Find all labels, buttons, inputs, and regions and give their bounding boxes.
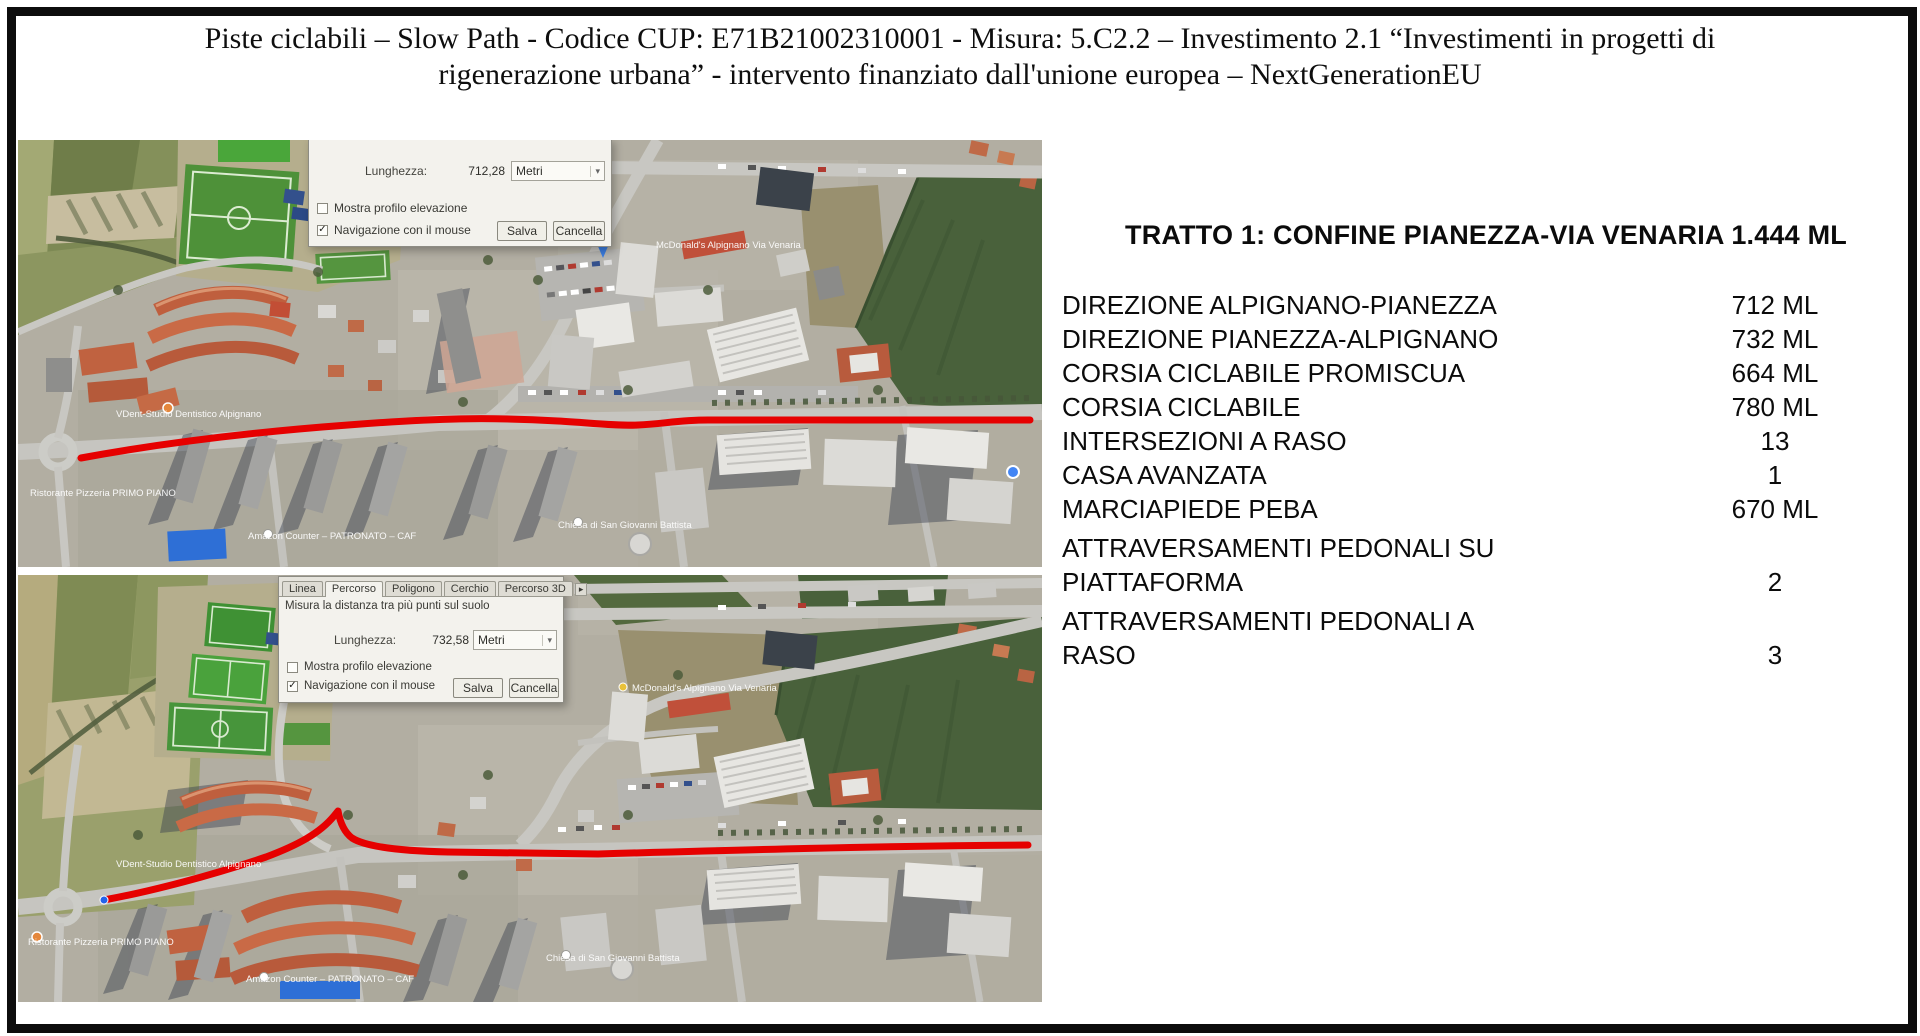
row-label: DIREZIONE ALPIGNANO-PIANEZZA xyxy=(1062,288,1522,322)
unit-value: Metri xyxy=(516,164,543,178)
unit-dropdown[interactable]: Metri ▾ xyxy=(473,630,557,650)
blue-location-icon xyxy=(1007,466,1019,478)
unit-value: Metri xyxy=(478,633,505,647)
church-dome xyxy=(629,533,651,555)
title-line-2: rigenerazione urbana” - intervento finan… xyxy=(70,57,1850,93)
length-value: 712,28 xyxy=(439,164,505,178)
map-label: Ristorante Pizzeria PRIMO PIANO xyxy=(28,937,174,948)
measure-dialog-bottom: Linea Percorso Poligono Cerchio Percorso… xyxy=(278,576,564,703)
map-label: VDent-Studio Dentistico Alpignano xyxy=(116,409,261,420)
map-label: Amazon Counter – PATRONATO – CAF xyxy=(246,974,414,985)
satellite-map-bottom: VDent-Studio Dentistico Alpignano Ristor… xyxy=(18,575,1042,1002)
measure-dialog-top: Lunghezza: 712,28 Metri ▾ Mostra profilo… xyxy=(308,140,612,247)
tratto-heading: TRATTO 1: CONFINE PIANEZZA-VIA VENARIA 1… xyxy=(1062,220,1910,250)
map-label: Chiesa di San Giovanni Battista xyxy=(558,520,692,531)
table-row: ATTRAVERSAMENTI PEDONALI A RASO 3 xyxy=(1062,604,1910,672)
row-label: CASA AVANZATA xyxy=(1062,458,1522,492)
row-value: 664 ML xyxy=(1640,356,1910,390)
table-row: CORSIA CICLABILE PROMISCUA 664 ML xyxy=(1062,356,1910,390)
table-row: MARCIAPIEDE PEBA 670 ML xyxy=(1062,492,1910,526)
save-button[interactable]: Salva xyxy=(497,221,547,241)
mouse-nav-checkbox[interactable]: ✓ xyxy=(287,681,298,692)
row-value: 712 ML xyxy=(1640,288,1910,322)
row-value: 732 ML xyxy=(1640,322,1910,356)
chevron-down-icon: ▾ xyxy=(542,635,552,646)
map-label: McDonald's Alpignano Via Venaria xyxy=(656,240,801,251)
table-row: CASA AVANZATA 1 xyxy=(1062,458,1910,492)
row-value: 1 xyxy=(1640,458,1910,492)
table-row: DIREZIONE PIANEZZA-ALPIGNANO 732 ML xyxy=(1062,322,1910,356)
document-title: Piste ciclabili – Slow Path - Codice CUP… xyxy=(70,21,1850,93)
cancel-button[interactable]: Cancella xyxy=(509,678,559,698)
tab-poligono[interactable]: Poligono xyxy=(385,581,442,596)
tab-overflow-arrow-icon[interactable]: ▸ xyxy=(575,583,588,596)
table-row: INTERSEZIONI A RASO 13 xyxy=(1062,424,1910,458)
tratto-panel: TRATTO 1: CONFINE PIANEZZA-VIA VENARIA 1… xyxy=(1062,220,1910,672)
elevation-checkbox[interactable] xyxy=(287,662,298,673)
elevation-label: Mostra profilo elevazione xyxy=(334,201,467,215)
table-row: ATTRAVERSAMENTI PEDONALI SU PIATTAFORMA … xyxy=(1062,531,1910,599)
unit-dropdown[interactable]: Metri ▾ xyxy=(511,161,605,181)
route-start-dot xyxy=(100,896,108,904)
measure-dialog-tabs: Linea Percorso Poligono Cerchio Percorso… xyxy=(279,577,563,597)
save-button[interactable]: Salva xyxy=(453,678,503,698)
measure-description: Misura la distanza tra più punti sul suo… xyxy=(285,600,490,612)
map-label: Amazon Counter – PATRONATO – CAF xyxy=(248,531,416,542)
tab-cerchio[interactable]: Cerchio xyxy=(444,581,496,596)
table-row: DIREZIONE ALPIGNANO-PIANEZZA 712 ML xyxy=(1062,288,1910,322)
row-label: ATTRAVERSAMENTI PEDONALI SU PIATTAFORMA xyxy=(1062,531,1522,599)
row-label: MARCIAPIEDE PEBA xyxy=(1062,492,1522,526)
tab-percorso[interactable]: Percorso xyxy=(325,581,383,597)
length-value: 732,58 xyxy=(407,633,469,647)
row-label: CORSIA CICLABILE xyxy=(1062,390,1522,424)
row-label: ATTRAVERSAMENTI PEDONALI A RASO xyxy=(1062,604,1522,672)
map-label: VDent-Studio Dentistico Alpignano xyxy=(116,859,261,870)
cancel-button[interactable]: Cancella xyxy=(553,221,605,241)
chevron-down-icon: ▾ xyxy=(590,166,600,177)
mouse-nav-label: Navigazione con il mouse xyxy=(334,223,471,237)
map-label: McDonald's Alpignano Via Venaria xyxy=(632,683,777,694)
elevation-checkbox[interactable] xyxy=(317,203,328,214)
length-label: Lunghezza: xyxy=(365,164,427,178)
row-value: 2 xyxy=(1640,565,1910,599)
mouse-nav-checkbox[interactable]: ✓ xyxy=(317,225,328,236)
yellow-pin-icon xyxy=(619,683,627,691)
elevation-label: Mostra profilo elevazione xyxy=(304,661,432,673)
tab-percorso-3d[interactable]: Percorso 3D xyxy=(498,581,573,596)
row-value: 3 xyxy=(1640,638,1910,672)
row-value: 13 xyxy=(1640,424,1910,458)
length-label: Lunghezza: xyxy=(334,633,396,647)
map-label: Chiesa di San Giovanni Battista xyxy=(546,953,680,964)
row-label: INTERSEZIONI A RASO xyxy=(1062,424,1522,458)
row-value: 670 ML xyxy=(1640,492,1910,526)
title-line-1: Piste ciclabili – Slow Path - Codice CUP… xyxy=(70,21,1850,57)
table-row: CORSIA CICLABILE 780 ML xyxy=(1062,390,1910,424)
mouse-nav-label: Navigazione con il mouse xyxy=(304,680,435,692)
satellite-map-top: VDent-Studio Dentistico Alpignano Ristor… xyxy=(18,140,1042,567)
map-label: Ristorante Pizzeria PRIMO PIANO xyxy=(30,488,176,499)
row-label: DIREZIONE PIANEZZA-ALPIGNANO xyxy=(1062,322,1522,356)
tab-linea[interactable]: Linea xyxy=(282,581,323,596)
row-label: CORSIA CICLABILE PROMISCUA xyxy=(1062,356,1522,390)
row-value: 780 ML xyxy=(1640,390,1910,424)
